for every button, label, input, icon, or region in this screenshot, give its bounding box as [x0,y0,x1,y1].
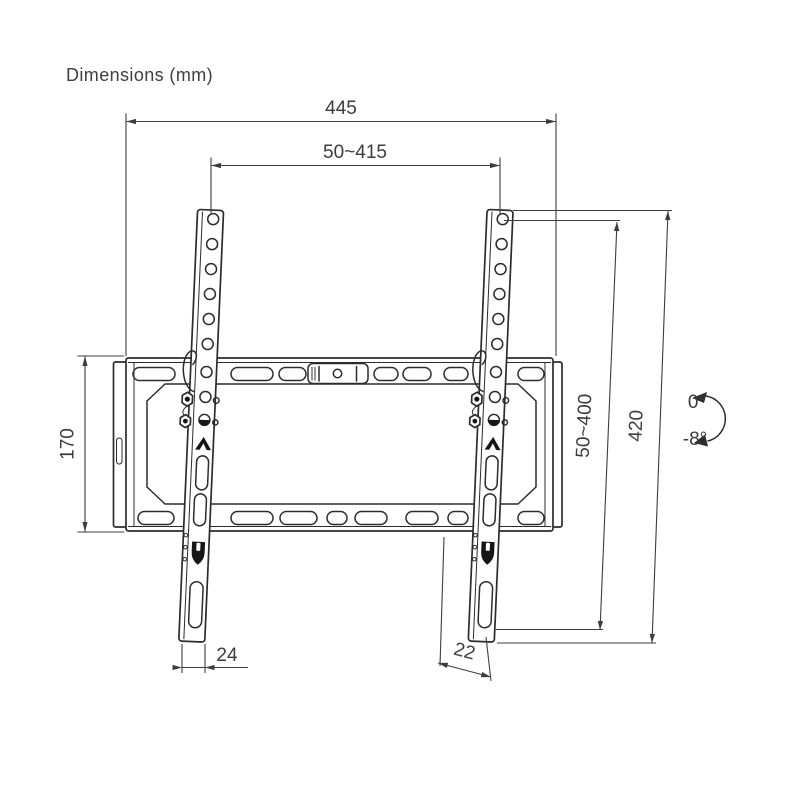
tv-mount-dimension-drawing: 445 50~415 170 50~400 [0,0,800,800]
technical-drawing-page: 445 50~415 170 50~400 [0,0,800,800]
wall-plate-right-flange [553,362,563,527]
dim-label-445: 445 [325,98,357,119]
dim-left-arm-width: 24 [173,644,249,673]
dim-label-50-415: 50~415 [323,142,387,163]
dim-label-24: 24 [216,645,238,666]
tilt-max-label: 0° [688,392,706,413]
dim-vesa-width-range: 50~415 [211,142,500,214]
tilt-min-label: -8° [683,429,708,450]
tilt-arc [706,396,725,441]
dim-label-170: 170 [58,428,79,460]
page-title: Dimensions (mm) [66,65,213,85]
tilt-indicator: 0° -8° [683,392,726,450]
dim-label-22: 22 [451,639,477,665]
wall-plate-left-flange [114,362,127,527]
dim-label-50-400: 50~400 [573,393,597,458]
dim-label-420: 420 [625,410,647,442]
